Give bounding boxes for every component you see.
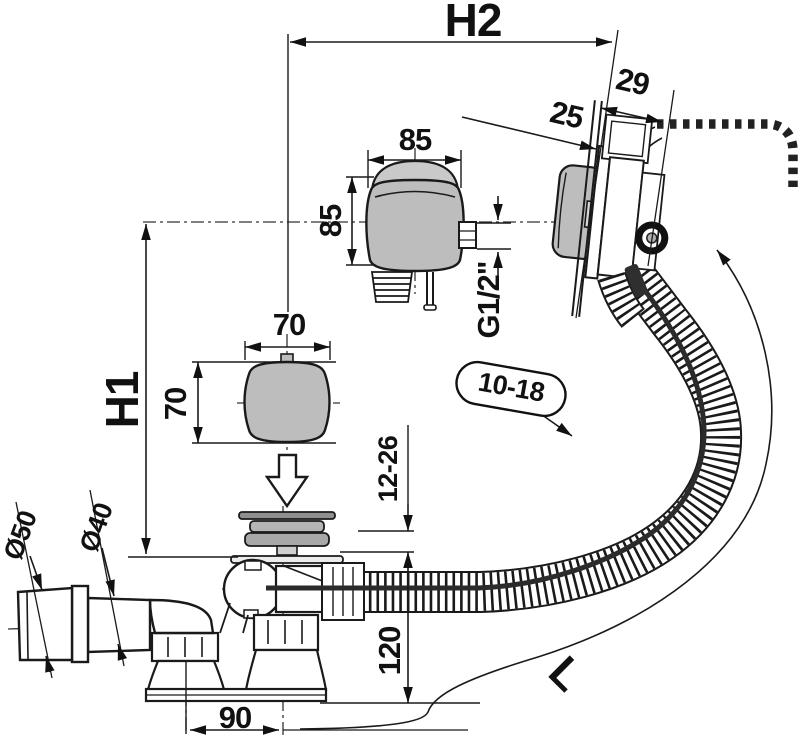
label-25: 25 — [547, 94, 587, 136]
label-hose-length: L — [539, 647, 593, 701]
elbow-nut — [152, 633, 218, 661]
bath-drain-set-drawing: H2 H1 29 25 85 85 G1/2" 70 70 10-18 12-2… — [0, 0, 800, 738]
label-h1: H1 — [96, 371, 148, 428]
label-70-height: 70 — [158, 388, 193, 420]
label-12-26: 12-26 — [373, 435, 403, 502]
label-thread-g12: G1/2" — [471, 262, 506, 339]
knob-threaded-shank — [372, 272, 412, 302]
outlet-pipe-end — [18, 588, 72, 660]
label-dia-50: Ø50 — [0, 507, 43, 564]
knob-body — [366, 180, 463, 271]
assembly-direction-arrow — [267, 455, 307, 506]
label-dia-40: Ø40 — [74, 499, 119, 556]
knob-pipe — [427, 272, 433, 305]
label-85-width: 85 — [399, 122, 432, 157]
label-29: 29 — [613, 61, 653, 103]
label-h2: H2 — [445, 0, 502, 46]
tail-nut — [254, 615, 318, 650]
label-85-height: 85 — [313, 204, 348, 237]
label-120: 120 — [372, 627, 407, 676]
label-70-width: 70 — [273, 307, 305, 342]
thread-outlet-g12 — [459, 222, 476, 248]
technical-drawing-page: H2 H1 29 25 85 85 G1/2" 70 70 10-18 12-2… — [0, 0, 800, 738]
tail-skirt — [246, 650, 326, 690]
label-90: 90 — [219, 700, 251, 735]
filler-knob-front — [366, 161, 476, 310]
control-button — [245, 354, 330, 442]
hose-union-nut — [322, 563, 364, 620]
waste-plug — [231, 512, 343, 563]
